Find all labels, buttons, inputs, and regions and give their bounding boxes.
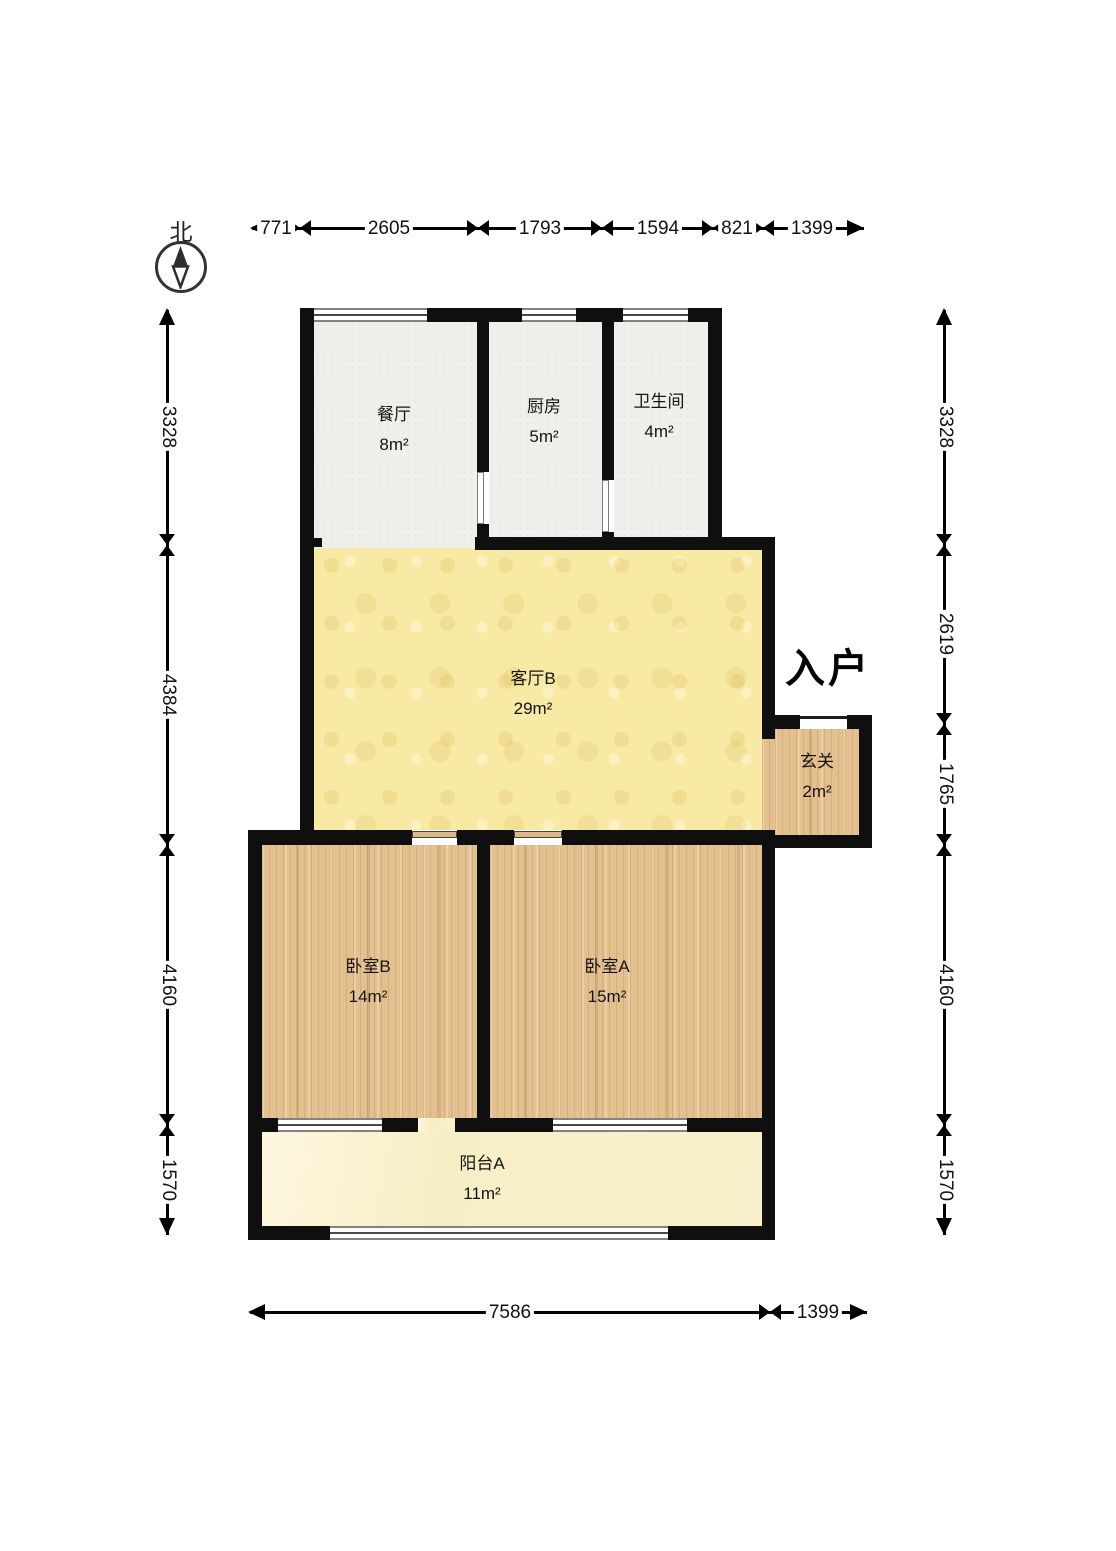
kitchen-window xyxy=(522,308,576,322)
foyer-name: 玄关 xyxy=(800,747,834,777)
dim-left-3328: 3328 xyxy=(157,403,179,451)
dim-top-1793: 1793 xyxy=(516,218,564,240)
dim-right-2619: 2619 xyxy=(934,610,956,658)
wall-living-right xyxy=(762,537,775,739)
dim-top-771: 771 xyxy=(257,218,295,240)
dim-top-1594: 1594 xyxy=(634,218,682,240)
bathroom-name: 卫生间 xyxy=(634,387,685,417)
dim-right-1570: 1570 xyxy=(934,1156,956,1204)
compass-icon xyxy=(155,241,207,293)
bedroom-a-label: 卧室A 15m² xyxy=(584,952,629,1012)
kitchen-area: 5m² xyxy=(527,422,561,452)
dim-tick xyxy=(159,834,175,856)
kitchen-label: 厨房 5m² xyxy=(527,392,561,452)
bedroom-b-name: 卧室B xyxy=(345,952,390,982)
wall-bedroom-top-2 xyxy=(457,830,514,845)
dim-tick xyxy=(936,713,952,735)
wall-balcony-bottom-left xyxy=(248,1226,330,1240)
dim-tick xyxy=(159,534,175,556)
arrow-left-icon xyxy=(248,1304,265,1320)
balcony-name: 阳台A xyxy=(459,1149,504,1179)
dim-left-1570: 1570 xyxy=(157,1156,179,1204)
balcony-area: 11m² xyxy=(459,1179,504,1209)
dining-area: 8m² xyxy=(377,430,411,460)
bedroom-b-door xyxy=(412,831,457,838)
dim-tick xyxy=(936,1114,952,1136)
dim-tick xyxy=(759,1304,781,1320)
bedroom-b-label: 卧室B 14m² xyxy=(345,952,390,1012)
wall-balcony-bottom-right xyxy=(668,1226,775,1240)
dim-top-2605: 2605 xyxy=(365,218,413,240)
wall-bedroom-bottom-2 xyxy=(382,1118,418,1132)
dim-top-821: 821 xyxy=(718,218,756,240)
dim-bottom-7586: 7586 xyxy=(486,1302,534,1324)
foyer-passage-floor xyxy=(762,739,775,835)
kitchen-name: 厨房 xyxy=(527,392,561,422)
balcony-label: 阳台A 11m² xyxy=(459,1149,504,1209)
entrance-label: 入户 xyxy=(785,636,871,694)
wall-bedroom-divider xyxy=(477,845,490,1120)
balcony-door-opening xyxy=(418,1118,455,1132)
compass-needle-icon xyxy=(158,244,203,289)
wall-foyer-right xyxy=(859,715,872,848)
wall-bedroom-bottom-4 xyxy=(687,1118,762,1132)
wall-right-outer-lower xyxy=(762,845,775,1240)
bedroom-a-door xyxy=(514,831,562,838)
wall-bedroom-bottom-3 xyxy=(455,1118,553,1132)
balcony-floor xyxy=(262,1132,762,1226)
wall-bedroom-top-1 xyxy=(248,830,412,845)
dim-left-4160: 4160 xyxy=(157,961,179,1009)
wall-bedroom-top-3 xyxy=(562,830,775,845)
dim-tick xyxy=(936,834,952,856)
dim-right-1765: 1765 xyxy=(934,760,956,808)
wall-bathroom-right xyxy=(708,308,722,550)
dim-right-3328: 3328 xyxy=(934,403,956,451)
dim-right-4160: 4160 xyxy=(934,961,956,1009)
bathroom-window xyxy=(623,308,688,322)
wall-dining-kitchen-lower xyxy=(477,524,489,538)
dim-top-1399: 1399 xyxy=(788,218,836,240)
bedroom-a-area: 15m² xyxy=(584,982,629,1012)
wall-left-outer-lower xyxy=(248,830,262,1240)
wall-foyer-top-left xyxy=(775,715,800,729)
foyer-area: 2m² xyxy=(800,777,834,807)
living-label: 客厅B 29m² xyxy=(510,664,555,724)
bedroom-b-area: 14m² xyxy=(345,982,390,1012)
bathroom-label: 卫生间 4m² xyxy=(634,387,685,447)
wall-notch xyxy=(314,538,322,547)
arrow-right-icon xyxy=(847,220,864,236)
wall-dining-kitchen xyxy=(477,320,489,472)
dining-name: 餐厅 xyxy=(377,400,411,430)
dim-tick xyxy=(591,220,613,236)
kitchen-door xyxy=(477,472,484,524)
living-name: 客厅B xyxy=(510,664,555,694)
wall-foyer-bottom xyxy=(762,835,872,848)
arrow-down-icon xyxy=(159,1218,175,1235)
wall-left-outer-upper xyxy=(300,308,314,845)
bathroom-door xyxy=(602,480,609,532)
dim-left-4384: 4384 xyxy=(157,671,179,719)
arrow-up-icon xyxy=(159,308,175,325)
floorplan-canvas: 北 xyxy=(0,0,1116,1551)
arrow-right-icon xyxy=(850,1304,867,1320)
dim-tick xyxy=(467,220,489,236)
wall-kitchen-bathroom xyxy=(602,320,614,480)
dim-bottom-1399: 1399 xyxy=(794,1302,842,1324)
dim-tick xyxy=(159,1114,175,1136)
dim-tick xyxy=(936,534,952,556)
wall-bedroom-bottom-1 xyxy=(248,1118,278,1132)
bathroom-area: 4m² xyxy=(634,417,685,447)
arrow-down-icon xyxy=(936,1218,952,1235)
wall-topblock-bottom xyxy=(475,537,775,550)
bedroom-a-name: 卧室A xyxy=(584,952,629,982)
bedroom-b-window xyxy=(278,1118,382,1132)
entry-door xyxy=(800,716,847,719)
bedroom-a-window xyxy=(553,1118,687,1132)
dining-window xyxy=(314,308,427,322)
living-area: 29m² xyxy=(510,694,555,724)
balcony-window xyxy=(330,1226,668,1240)
arrow-up-icon xyxy=(936,308,952,325)
foyer-label: 玄关 2m² xyxy=(800,747,834,807)
dining-label: 餐厅 8m² xyxy=(377,400,411,460)
